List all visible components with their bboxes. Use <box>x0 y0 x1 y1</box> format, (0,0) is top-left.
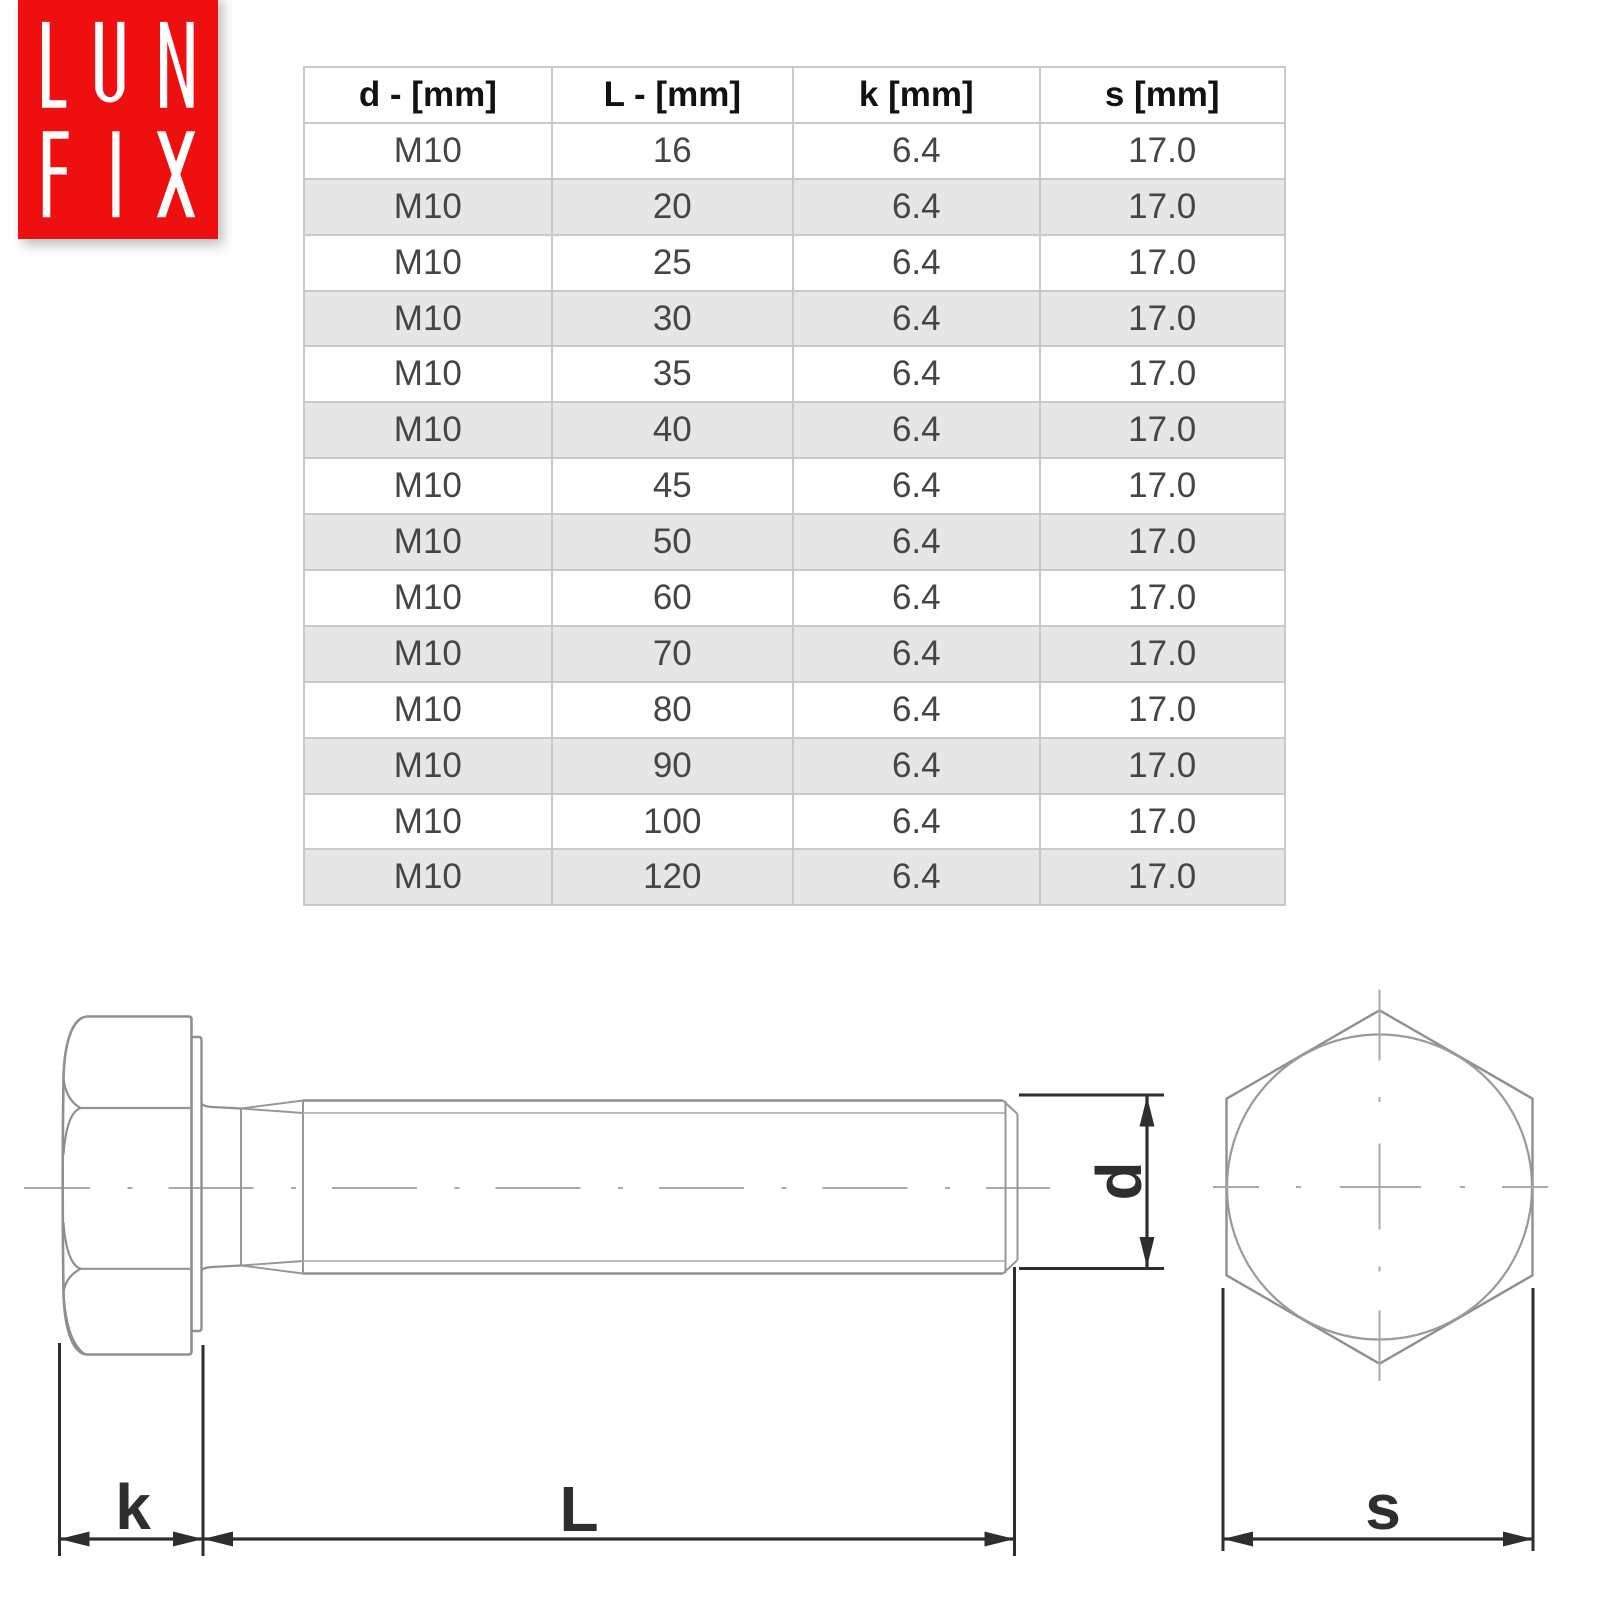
svg-text:s: s <box>1365 1471 1401 1543</box>
svg-text:d: d <box>1083 1161 1155 1200</box>
svg-text:k: k <box>115 1471 151 1543</box>
svg-text:L: L <box>559 1473 598 1545</box>
